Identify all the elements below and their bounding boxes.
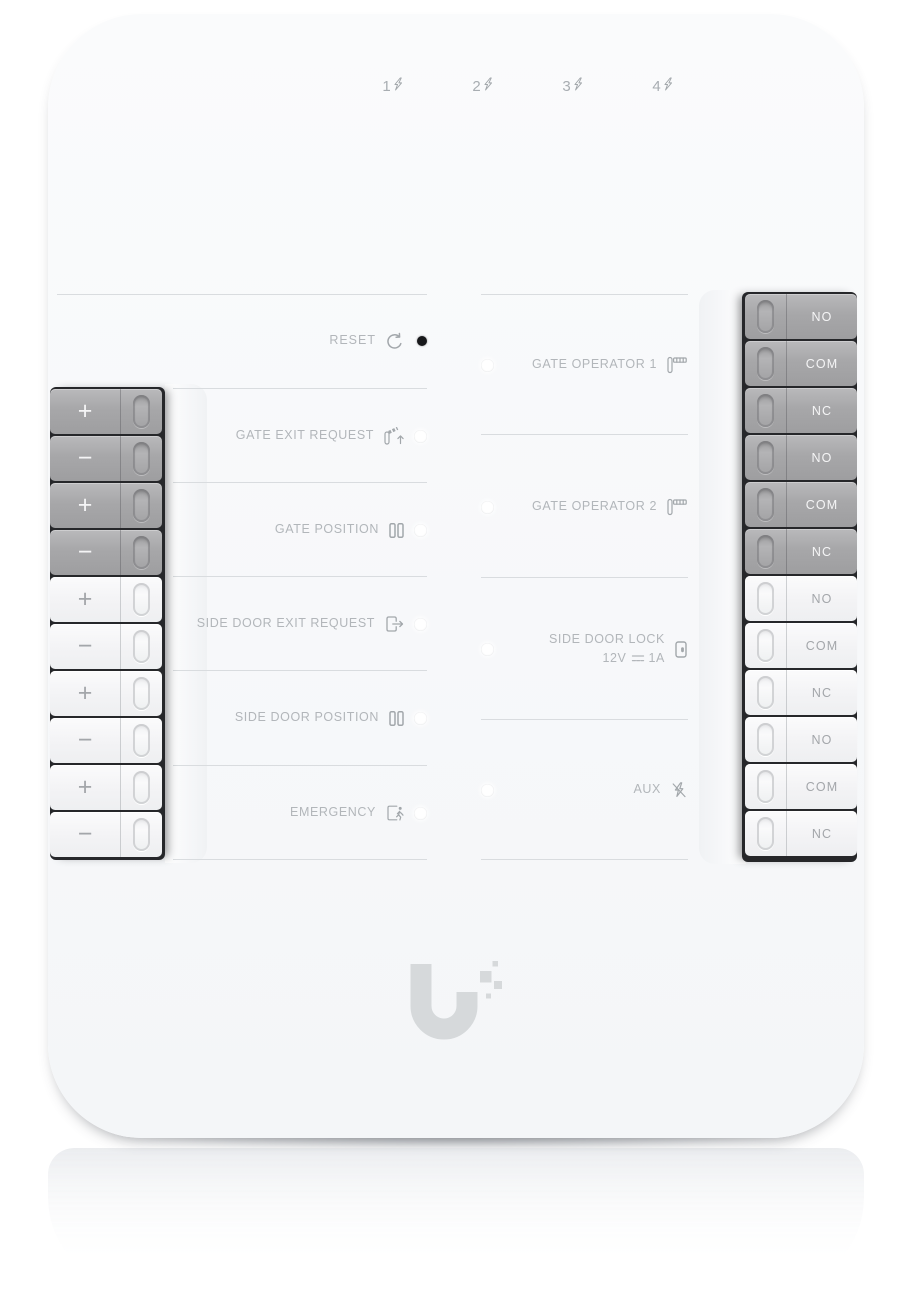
terminal-label: NC [787,388,857,433]
terminal-label: NO [787,717,857,762]
terminal-minus[interactable]: − [50,624,162,669]
product-photo-stage: 1 2 3 4 RESET GATE EXIT R [0,0,911,1300]
terminal-plus[interactable]: + [50,577,162,622]
terminal-nc[interactable]: NC [745,388,857,433]
terminal-minus[interactable]: − [50,436,162,481]
gate-operator-2-led [481,501,494,514]
terminal-label: − [50,436,120,481]
divider [173,388,427,389]
terminal-label: COM [787,341,857,386]
divider [481,859,688,860]
dc-symbol-icon [631,654,645,663]
device-reflection [48,1148,864,1288]
reset-icon [385,332,404,351]
aux-no-power-icon [670,781,688,799]
terminal-no[interactable]: NO [745,294,857,339]
divider [173,576,427,577]
row-label: AUX [633,781,661,799]
gate-operator-icon [666,356,688,374]
screw-slot[interactable] [133,724,150,757]
screw-slot[interactable] [133,771,150,804]
terminal-no[interactable]: NO [745,717,857,762]
terminal-minus[interactable]: − [50,812,162,857]
terminal-nc[interactable]: NC [745,811,857,856]
screw-slot[interactable] [133,489,150,522]
divider [481,577,688,578]
emergency-led [414,807,427,820]
screw-slot[interactable] [133,583,150,616]
divider [173,765,427,766]
terminal-label: NO [787,435,857,480]
divider [173,482,427,483]
lightning-icon [484,77,494,91]
screw-slot[interactable] [757,676,774,709]
lightning-icon [574,77,584,91]
rating-voltage: 12V [602,649,626,668]
screw-slot[interactable] [133,536,150,569]
terminal-com[interactable]: COM [745,341,857,386]
divider [173,670,427,671]
terminal-label: NC [787,670,857,715]
screw-slot[interactable] [757,535,774,568]
terminal-label: + [50,483,120,528]
terminal-label: + [50,577,120,622]
row-label-block: SIDE DOOR LOCK 12V 1A [549,630,665,668]
emergency-exit-icon [385,804,405,822]
channel-number: 4 [652,78,660,95]
side-door-position-led [414,712,427,725]
reset-row: RESET [173,313,427,369]
right-terminal-block: NO COM NC NO COM NC [745,294,857,856]
screw-slot[interactable] [757,582,774,615]
gate-exit-request-led [414,430,427,443]
gate-operator-icon [666,498,688,516]
terminal-label: NC [787,811,857,856]
screw-slot[interactable] [757,394,774,427]
gate-exit-request-icon [383,427,405,446]
screw-slot[interactable] [757,629,774,662]
row-label: SIDE DOOR POSITION [235,709,379,727]
gate-position-led [414,524,427,537]
row-label: GATE EXIT REQUEST [236,427,374,445]
screw-slot[interactable] [133,818,150,851]
channel-2-label: 2 [472,77,493,95]
left-terminal-block: + − + − + − + [50,389,162,857]
aux-row: AUX [481,762,688,818]
terminal-plus[interactable]: + [50,483,162,528]
screw-slot[interactable] [757,300,774,333]
door-lock-icon [674,640,688,659]
reset-label: RESET [329,332,376,350]
row-label: SIDE DOOR LOCK [549,630,665,649]
gate-position-icon [388,522,405,539]
terminal-label: + [50,389,120,434]
row-label: GATE OPERATOR 1 [532,356,657,374]
row-label: GATE OPERATOR 2 [532,498,657,516]
terminal-label: − [50,718,120,763]
emergency-row: EMERGENCY [173,785,427,841]
right-terminal-tray [699,290,746,864]
gate-operator-1-led [481,359,494,372]
terminal-com[interactable]: COM [745,482,857,527]
terminal-minus[interactable]: − [50,530,162,575]
terminal-plus[interactable]: + [50,765,162,810]
gate-exit-request-row: GATE EXIT REQUEST [173,408,427,464]
channel-number: 2 [472,78,480,95]
lightning-icon [664,77,674,91]
row-label: GATE POSITION [275,521,379,539]
terminal-plus[interactable]: + [50,389,162,434]
terminal-label: NO [787,576,857,621]
power-rating: 12V 1A [602,649,665,668]
side-door-exit-request-row: SIDE DOOR EXIT REQUEST [173,596,427,652]
divider [481,719,688,720]
channel-4-label: 4 [652,77,673,95]
terminal-label: COM [787,482,857,527]
screw-slot[interactable] [757,723,774,756]
screw-slot[interactable] [133,677,150,710]
side-door-exit-request-led [414,618,427,631]
terminal-nc[interactable]: NC [745,670,857,715]
terminal-label: − [50,624,120,669]
terminal-no[interactable]: NO [745,435,857,480]
screw-slot[interactable] [133,630,150,663]
ubiquiti-u-logo [405,956,505,1052]
terminal-com[interactable]: COM [745,623,857,668]
screw-slot[interactable] [757,817,774,850]
terminal-label: − [50,812,120,857]
side-door-position-icon [388,710,405,727]
channel-3-label: 3 [562,77,583,95]
rating-current: 1A [649,649,666,668]
screw-slot[interactable] [133,442,150,475]
screw-slot[interactable] [757,488,774,521]
side-door-lock-row: SIDE DOOR LOCK 12V 1A [481,619,688,679]
channel-1-label: 1 [382,77,403,95]
row-label: SIDE DOOR EXIT REQUEST [197,615,375,633]
divider [481,294,688,295]
terminal-minus[interactable]: − [50,718,162,763]
gate-operator-2-row: GATE OPERATOR 2 [481,479,688,535]
gate-operator-1-row: GATE OPERATOR 1 [481,337,688,393]
gate-position-row: GATE POSITION [173,502,427,558]
screw-slot[interactable] [757,770,774,803]
terminal-label: + [50,671,120,716]
terminal-nc[interactable]: NC [745,529,857,574]
divider [173,859,427,860]
row-label: EMERGENCY [290,804,376,822]
channel-number: 3 [562,78,570,95]
terminal-label: COM [787,623,857,668]
screw-slot[interactable] [757,347,774,380]
side-door-lock-led [481,643,494,656]
terminal-no[interactable]: NO [745,576,857,621]
screw-slot[interactable] [757,441,774,474]
side-door-position-row: SIDE DOOR POSITION [173,690,427,746]
divider [481,434,688,435]
side-door-exit-request-icon [384,615,405,633]
aux-led [481,784,494,797]
terminal-label: − [50,530,120,575]
terminal-label: NC [787,529,857,574]
reset-button[interactable] [417,336,427,346]
terminal-label: + [50,765,120,810]
divider [57,294,427,295]
terminal-label: NO [787,294,857,339]
channel-number: 1 [382,78,390,95]
terminal-label: COM [787,764,857,809]
screw-slot[interactable] [133,395,150,428]
terminal-plus[interactable]: + [50,671,162,716]
lightning-icon [394,77,404,91]
terminal-com[interactable]: COM [745,764,857,809]
